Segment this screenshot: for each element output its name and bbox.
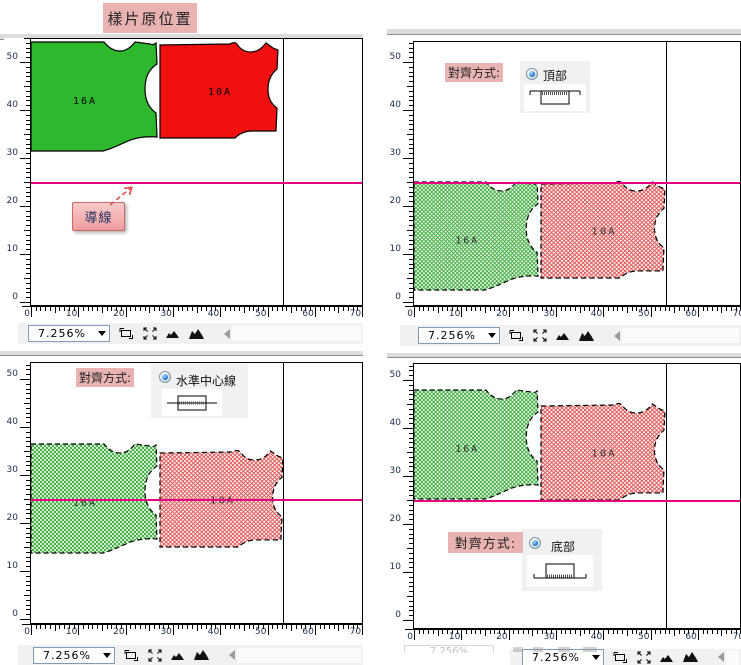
ruler-tick [126, 307, 127, 317]
ruler-number: 40 [7, 418, 18, 427]
ruler-tick [622, 630, 623, 634]
hills-small-icon[interactable] [166, 328, 180, 339]
ruler-tick [92, 625, 93, 629]
ruler-tick [173, 307, 174, 317]
piece-label: 10A [591, 226, 616, 238]
guide-line[interactable] [31, 499, 362, 501]
ruler-tick [603, 630, 604, 640]
ruler-tick [182, 625, 183, 629]
ruler-number: 60 [679, 310, 697, 319]
ruler-tick [403, 380, 413, 381]
pattern-piece-10A[interactable]: 10A [160, 43, 278, 138]
ruler-tick [126, 625, 127, 635]
ruler-tick [272, 625, 273, 629]
ruler-tick [45, 625, 46, 629]
ruler-number: 40 [201, 628, 219, 637]
ruler-number: 50 [7, 53, 18, 62]
ruler-tick [712, 630, 713, 634]
ruler-tick [622, 307, 623, 311]
ruler-tick [36, 625, 37, 629]
ruler-tick [239, 307, 240, 311]
scroll-left-arrow-icon[interactable] [713, 652, 724, 662]
ruler-tick [230, 625, 231, 629]
ruler-tick [674, 307, 675, 313]
ruler-tick [320, 625, 321, 629]
ruler-number: 20 [490, 310, 508, 319]
ruler-number: 50 [249, 628, 267, 637]
ruler-tick [178, 625, 179, 629]
ruler-tick [197, 625, 198, 631]
align-option-label[interactable]: 水準中心線 [176, 372, 236, 389]
fit-frame-icon[interactable] [119, 327, 134, 340]
ruler-number: 40 [390, 101, 401, 110]
horizontal-ruler: 010203040506070 [22, 624, 363, 639]
align-top-glyph-icon [524, 84, 586, 111]
scrollbar-track[interactable] [726, 650, 739, 665]
partial-status-bar: 7.256% [403, 644, 661, 653]
ruler-number: 20 [107, 310, 125, 319]
ruler-tick [403, 158, 413, 159]
ruler-tick [334, 307, 335, 311]
original-position-title: 樣片原位置 [103, 3, 197, 33]
ruler-tick [83, 625, 84, 629]
ruler-tick [523, 307, 524, 311]
dropdown-arrow-icon[interactable] [485, 328, 499, 343]
ruler-tick [282, 625, 283, 629]
ruler-tick [277, 307, 278, 311]
ruler-number: 10 [7, 245, 18, 254]
ruler-tick [575, 630, 576, 634]
ruler-tick [603, 307, 604, 317]
ruler-tick [475, 307, 476, 311]
ruler-tick [220, 307, 221, 317]
hills-large-icon[interactable] [683, 651, 699, 663]
ruler-tick [480, 307, 481, 311]
vertical-ruler: 50403020100 [387, 363, 413, 629]
ruler-number: 10 [7, 562, 18, 571]
ruler-tick [608, 307, 609, 311]
ruler-tick [31, 307, 32, 317]
ruler-tick [78, 307, 79, 317]
ruler-tick [561, 307, 562, 311]
ruler-tick [20, 110, 30, 111]
guide-line[interactable] [414, 500, 740, 502]
hills-large-icon[interactable] [189, 328, 205, 340]
ruler-tick [485, 307, 486, 313]
ruler-tick [324, 307, 325, 311]
piece-label: 16A [73, 96, 97, 107]
ruler-tick [509, 630, 510, 640]
ruler-tick [338, 625, 339, 631]
ruler-number: 20 [390, 515, 401, 524]
ruler-tick [291, 307, 292, 313]
ruler-tick [608, 630, 609, 634]
ruler-tick [403, 620, 413, 621]
vertical-ruler: 50403020100 [387, 41, 413, 306]
ruler-number: 60 [296, 310, 314, 319]
ruler-tick [187, 625, 188, 629]
zoom-level-value: 7.256% [419, 329, 485, 342]
ruler-tick [717, 630, 718, 634]
piece-label: 16A [455, 444, 479, 455]
ruler-tick [286, 625, 287, 629]
ruler-tick [268, 625, 269, 635]
ruler-tick [145, 307, 146, 311]
ruler-tick [669, 630, 670, 634]
vertical-reference-line [283, 363, 284, 623]
ruler-tick [703, 307, 704, 311]
piece-label: 10A [208, 87, 232, 98]
ruler-tick [518, 307, 519, 311]
ruler-tick [707, 630, 708, 634]
ruler-tick [438, 630, 439, 636]
ruler-tick [480, 630, 481, 634]
ruler-tick [403, 110, 413, 111]
ruler-number: 0 [12, 293, 18, 302]
ruler-tick [565, 307, 566, 311]
hills-small-icon[interactable] [171, 650, 185, 661]
ruler-tick [665, 630, 666, 634]
pattern-piece-16A[interactable]: 16A [414, 182, 541, 291]
ruler-tick [466, 307, 467, 311]
align-mode-label: 對齊方式: [445, 63, 503, 82]
ruler-tick [362, 625, 363, 635]
ruler-tick [433, 630, 434, 634]
guide-line[interactable] [414, 182, 740, 184]
ruler-tick [698, 630, 699, 640]
ruler-tick [20, 571, 30, 572]
ruler-tick [20, 475, 30, 476]
piece-label: 10A [591, 448, 616, 460]
ruler-tick [655, 630, 656, 634]
scrollbar-track[interactable] [232, 326, 361, 341]
ruler-tick [513, 307, 514, 311]
expand-view-icon[interactable] [143, 327, 157, 340]
dropdown-arrow-icon[interactable] [95, 326, 109, 341]
ruler-tick [329, 625, 330, 629]
ruler-number: 0 [405, 310, 413, 319]
horizontal-ruler: 010203040506070 [405, 629, 741, 645]
scroll-left-arrow-icon[interactable] [224, 650, 235, 660]
fit-frame-icon[interactable] [509, 329, 524, 342]
ruler-tick [135, 307, 136, 311]
ruler-tick [419, 307, 420, 311]
ruler-tick [565, 630, 566, 634]
ruler-number: 10 [390, 245, 401, 254]
ruler-number: 20 [107, 628, 125, 637]
status-bar: 7.256% [400, 324, 741, 346]
ruler-tick [20, 379, 30, 380]
ruler-tick [403, 62, 413, 63]
align-option-label[interactable]: 底部 [551, 538, 575, 555]
ruler-tick [509, 307, 510, 317]
ruler-tick [50, 307, 51, 311]
ruler-number: 30 [154, 310, 172, 319]
ruler-tick [315, 625, 316, 635]
ruler-tick [570, 307, 571, 311]
ruler-tick [655, 307, 656, 311]
ruler-tick [513, 630, 514, 634]
ruler-tick [192, 307, 193, 311]
ruler-number: 30 [7, 466, 18, 475]
ruler-tick [40, 625, 41, 629]
ruler-tick [40, 307, 41, 311]
ruler-tick [556, 630, 557, 640]
fit-frame-icon[interactable] [124, 649, 139, 662]
ruler-tick [419, 630, 420, 634]
ruler-number: 40 [7, 101, 18, 110]
ruler-tick [651, 630, 652, 640]
ruler-tick [338, 307, 339, 313]
ruler-number: 60 [679, 633, 697, 642]
ruler-tick [329, 307, 330, 311]
ruler-tick [403, 428, 413, 429]
ruler-number: 0 [395, 611, 401, 620]
expand-view-icon[interactable] [148, 649, 162, 662]
ruler-number: 30 [390, 467, 401, 476]
ruler-tick [277, 625, 278, 629]
ruler-tick [362, 307, 363, 317]
ruler-tick [149, 625, 150, 631]
ruler-tick [102, 625, 103, 631]
ruler-tick [627, 630, 628, 636]
guide-arrow-icon [100, 178, 145, 210]
ruler-tick [197, 307, 198, 313]
ruler-tick [438, 307, 439, 313]
align-option-radio[interactable] [526, 68, 538, 80]
ruler-tick [423, 307, 424, 311]
ruler-tick [423, 630, 424, 634]
ruler-tick [471, 630, 472, 634]
ruler-tick [528, 307, 529, 311]
ruler-tick [178, 307, 179, 311]
ruler-tick [466, 630, 467, 634]
ruler-tick [403, 206, 413, 207]
ruler-tick [225, 307, 226, 311]
ruler-number: 70 [343, 310, 361, 319]
scrollbar-track[interactable] [622, 328, 739, 343]
align-mode-label: 對齊方式: [76, 368, 134, 387]
ruler-number: 50 [7, 370, 18, 379]
ruler-number: 40 [201, 310, 219, 319]
ruler-number: 30 [154, 628, 172, 637]
ruler-tick [149, 307, 150, 313]
ruler-tick [528, 630, 529, 634]
ruler-tick [230, 307, 231, 311]
ruler-tick [145, 625, 146, 629]
piece-label: 16A [455, 235, 479, 246]
ruler-number: 20 [7, 197, 18, 206]
ruler-tick [556, 307, 557, 317]
ruler-number: 10 [390, 563, 401, 572]
ruler-tick [707, 307, 708, 311]
vertical-reference-line [283, 39, 284, 305]
ruler-tick [433, 307, 434, 311]
ruler-tick [83, 307, 84, 311]
ruler-tick [55, 307, 56, 313]
ruler-tick [570, 630, 571, 634]
ruler-number: 50 [390, 53, 401, 62]
ruler-tick [414, 630, 415, 640]
ruler-tick [665, 307, 666, 311]
status-bar: 7.256% [18, 322, 363, 344]
zoom-level-value: 7.256% [404, 645, 494, 653]
ruler-tick [617, 307, 618, 311]
ruler-tick [20, 619, 30, 620]
ruler-tick [20, 302, 30, 303]
ruler-number: 20 [490, 633, 508, 642]
ruler-tick [282, 307, 283, 311]
align-bottom-glyph-icon [527, 555, 593, 587]
ruler-tick [130, 307, 131, 311]
ruler-tick [234, 625, 235, 629]
ruler-number: 10 [442, 310, 460, 319]
expand-view-icon[interactable] [533, 329, 547, 342]
pattern-piece-16A[interactable]: 16A [31, 42, 160, 152]
ruler-tick [88, 307, 89, 311]
ruler-tick [20, 427, 30, 428]
ruler-tick [669, 307, 670, 311]
zoom-level-select[interactable]: 7.256% [28, 325, 110, 342]
ruler-tick [140, 307, 141, 311]
ruler-number: 40 [390, 419, 401, 428]
ruler-tick [92, 307, 93, 311]
ruler-tick [20, 254, 30, 255]
ruler-tick [220, 625, 221, 635]
ruler-tick [428, 307, 429, 311]
ruler-number: 30 [537, 310, 555, 319]
align-option-radio[interactable] [159, 371, 171, 383]
align-option-label[interactable]: 頂部 [543, 67, 567, 84]
ruler-tick [627, 307, 628, 313]
hills-large-icon[interactable] [579, 330, 595, 342]
ruler-tick [135, 625, 136, 629]
ruler-tick [613, 307, 614, 311]
vertical-reference-line [666, 364, 667, 628]
ruler-tick [225, 625, 226, 629]
ruler-tick [532, 307, 533, 313]
ruler-tick [20, 62, 30, 63]
ruler-tick [320, 307, 321, 311]
ruler-number: 60 [296, 628, 314, 637]
ruler-tick [173, 625, 174, 635]
ruler-tick [36, 307, 37, 311]
vertical-ruler: 50403020100 [4, 362, 30, 624]
ruler-number: 70 [726, 310, 741, 319]
vertical-reference-line [666, 42, 667, 305]
ruler-tick [414, 307, 415, 317]
ruler-tick [674, 630, 675, 636]
ruler-tick [268, 307, 269, 317]
ruler-tick [721, 630, 722, 636]
pattern-piece-10A[interactable]: 10A [541, 404, 665, 500]
align-hcenter-glyph-icon [162, 389, 222, 416]
ruler-number: 10 [442, 633, 460, 642]
zoom-level-value: 7.256% [34, 649, 100, 662]
dropdown-arrow-icon[interactable] [100, 648, 114, 663]
ruler-tick [315, 307, 316, 317]
screenshot-root: 50403020100 16A10A 010203040506070 7.256… [0, 0, 741, 665]
ruler-tick [403, 476, 413, 477]
scroll-left-arrow-icon[interactable] [219, 329, 230, 339]
ruler-tick [613, 630, 614, 634]
ruler-tick [20, 158, 30, 159]
ruler-tick [403, 254, 413, 255]
ruler-tick [698, 307, 699, 317]
ruler-tick [403, 524, 413, 525]
zoom-level-value: 7.256% [29, 327, 95, 340]
ruler-tick [403, 572, 413, 573]
ruler-number: 30 [390, 149, 401, 158]
ruler-number: 20 [7, 514, 18, 523]
ruler-tick [461, 307, 462, 317]
pattern-piece-10A[interactable]: 10A [541, 182, 665, 278]
ruler-tick [660, 630, 661, 634]
ruler-tick [187, 307, 188, 311]
pattern-canvas[interactable]: 16A10A [30, 38, 363, 306]
horizontal-ruler: 010203040506070 [405, 306, 741, 321]
align-option-radio[interactable] [529, 537, 541, 549]
ruler-tick [244, 307, 245, 313]
ruler-number: 10 [59, 310, 77, 319]
hills-small-icon[interactable] [660, 652, 674, 663]
ruler-tick [475, 630, 476, 634]
ruler-tick [244, 625, 245, 631]
ruler-tick [234, 307, 235, 311]
vertical-ruler: 50403020100 [4, 38, 30, 306]
ruler-tick [532, 630, 533, 636]
scroll-left-arrow-icon[interactable] [609, 331, 620, 341]
ruler-tick [50, 625, 51, 629]
ruler-tick [97, 307, 98, 311]
scrollbar-track[interactable] [237, 648, 361, 663]
ruler-tick [102, 307, 103, 313]
ruler-tick [485, 630, 486, 636]
ruler-tick [651, 307, 652, 317]
ruler-number: 40 [584, 310, 602, 319]
ruler-tick [45, 307, 46, 311]
horizontal-ruler: 010203040506070 [22, 306, 363, 321]
ruler-tick [518, 630, 519, 634]
ruler-number: 0 [405, 633, 413, 642]
ruler-tick [717, 307, 718, 311]
ruler-tick [721, 307, 722, 313]
ruler-tick [20, 523, 30, 524]
window-top-edge [387, 352, 741, 358]
ruler-number: 50 [632, 633, 650, 642]
ruler-tick [182, 307, 183, 311]
hills-large-icon[interactable] [194, 649, 210, 661]
zoom-level-select[interactable]: 7.256% [418, 327, 500, 344]
ruler-tick [461, 630, 462, 640]
ruler-number: 0 [22, 310, 30, 319]
ruler-tick [140, 625, 141, 629]
zoom-level-select[interactable]: 7.256% [33, 647, 115, 664]
ruler-number: 0 [395, 293, 401, 302]
guide-line[interactable] [31, 182, 362, 184]
ruler-tick [286, 307, 287, 311]
ruler-tick [580, 307, 581, 313]
ruler-tick [130, 625, 131, 629]
ruler-tick [561, 630, 562, 634]
hills-small-icon[interactable] [556, 330, 570, 341]
ruler-number: 30 [7, 149, 18, 158]
ruler-tick [192, 625, 193, 629]
ruler-number: 0 [22, 628, 30, 637]
ruler-tick [660, 307, 661, 311]
pattern-piece-16A[interactable]: 16A [414, 390, 541, 500]
window-top-edge [0, 350, 363, 356]
